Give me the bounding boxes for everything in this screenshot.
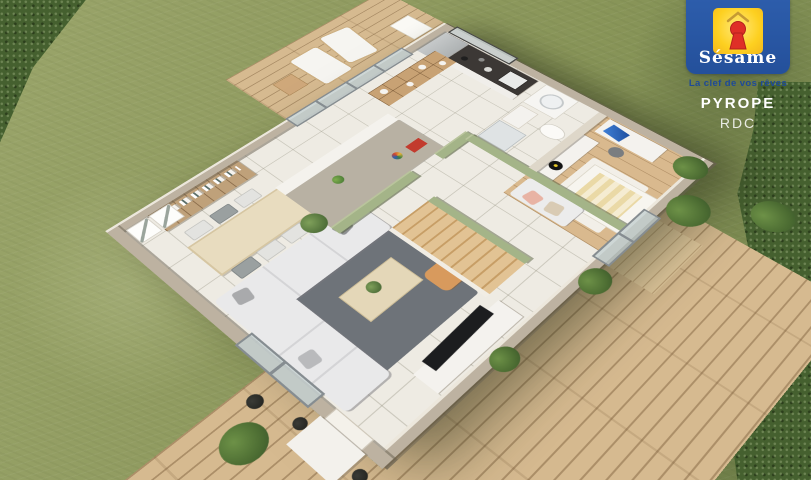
builder-watermark: MAISONS Sésame La clef de vos rêves PYRO…: [686, 0, 790, 131]
logo-tagline: La clef de vos rêves: [686, 78, 790, 89]
logo-brand-top: MAISONS: [686, 0, 790, 2]
floorplan-render: MAISONS Sésame La clef de vos rêves PYRO…: [0, 0, 811, 480]
floor-level-label: RDC: [686, 115, 790, 131]
scene-3d: [116, 96, 596, 456]
model-name-label: PYROPE: [686, 95, 790, 112]
logo-panel: MAISONS Sésame: [686, 0, 790, 74]
logo-brand-name: Sésame: [686, 48, 790, 68]
